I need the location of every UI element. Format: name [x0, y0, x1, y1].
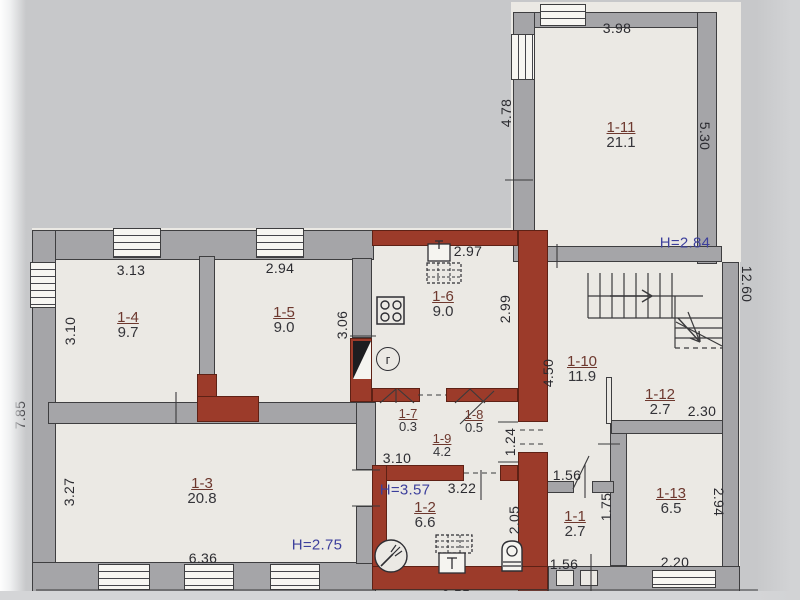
room-area: 6.5 — [656, 501, 686, 516]
dim-width-r9: 3.10 — [383, 450, 411, 466]
room-label-1-5: 1-5 9.0 — [273, 305, 295, 335]
room-label-1-3: 1-3 20.8 — [187, 476, 216, 506]
dim-gap-r8: 1.24 — [502, 428, 518, 456]
room-id: 1-10 — [567, 354, 597, 369]
photo-edge-bottom — [0, 591, 800, 600]
room-area: 9.0 — [432, 304, 454, 319]
photo-edge-right — [756, 0, 800, 600]
room-label-1-2: 1-2 6.6 — [414, 500, 436, 530]
room-id: 1-2 — [414, 500, 436, 515]
room-area: 0.3 — [399, 420, 418, 433]
photo-edge-left — [0, 0, 26, 600]
dim-right-r5: 3.06 — [334, 311, 350, 339]
height-r2: H=3.57 — [380, 482, 431, 499]
dim-bottom-r1: 1.56 — [550, 556, 578, 572]
dim-top-r6: 2.97 — [454, 243, 482, 259]
room-label-1-1: 1-1 2.7 — [564, 509, 586, 539]
room-label-1-10: 1-10 11.9 — [567, 354, 597, 384]
room-id: 1-4 — [117, 310, 139, 325]
dim-left-r10: 4.50 — [540, 359, 556, 387]
room-label-1-7: 1-7 0.3 — [399, 407, 418, 433]
room-id: 1-5 — [273, 305, 295, 320]
room-area: 4.2 — [433, 445, 452, 458]
stairs-icon — [588, 273, 722, 348]
dim-right-r11: 5.30 — [697, 122, 713, 150]
room-label-1-9: 1-9 4.2 — [433, 432, 452, 458]
dim-bottom-r12: 2.30 — [688, 403, 716, 419]
dim-right-r1: 1.75 — [598, 493, 614, 521]
room-area: 6.6 — [414, 515, 436, 530]
room-area: 2.7 — [645, 402, 675, 417]
room-id: 1-13 — [656, 486, 686, 501]
room-area: 20.8 — [187, 491, 216, 506]
room-area: 9.0 — [273, 320, 295, 335]
dim-bottom-r13: 2.20 — [661, 554, 689, 570]
room-area: 2.7 — [564, 524, 586, 539]
dim-top-r11: 3.98 — [603, 20, 631, 36]
room-area: 9.7 — [117, 325, 139, 340]
dim-left-r11: 4.78 — [498, 99, 514, 127]
room-label-1-13: 1-13 6.5 — [656, 486, 686, 516]
dim-right-total: 12.60 — [739, 266, 755, 303]
dim-right-r6: 2.99 — [497, 295, 513, 323]
room-area: 0.5 — [465, 421, 484, 434]
room-label-1-12: 1-12 2.7 — [645, 387, 675, 417]
dim-top-r4: 3.13 — [117, 262, 145, 278]
room-area: 11.9 — [567, 369, 597, 384]
room-id: 1-3 — [187, 476, 216, 491]
room-id: 1-1 — [564, 509, 586, 524]
room-area: 21.1 — [606, 135, 635, 150]
height-r3: H=2.75 — [292, 537, 343, 554]
room-id: 1-11 — [606, 120, 635, 135]
dim-left-r3: 3.27 — [61, 478, 77, 506]
room-label-1-11: 1-11 21.1 — [606, 120, 635, 150]
floor-plan-photo: г — [0, 0, 800, 600]
dim-bottom-r3: 6.36 — [189, 550, 217, 566]
room-id: 1-12 — [645, 387, 675, 402]
dim-right-r2: 2.05 — [506, 506, 522, 534]
dim-left-r4: 3.10 — [62, 317, 78, 345]
room-label-1-6: 1-6 9.0 — [432, 289, 454, 319]
dim-right-r13: 2.94 — [711, 488, 727, 516]
room-id: 1-6 — [432, 289, 454, 304]
dim-top-r5: 2.94 — [266, 260, 294, 276]
height-r11: H=2.84 — [660, 235, 711, 252]
room-label-1-4: 1-4 9.7 — [117, 310, 139, 340]
dim-top-r1: 1.56 — [553, 467, 581, 483]
dim-top-r2: 3.22 — [448, 480, 476, 496]
room-label-1-8: 1-8 0.5 — [465, 408, 484, 434]
